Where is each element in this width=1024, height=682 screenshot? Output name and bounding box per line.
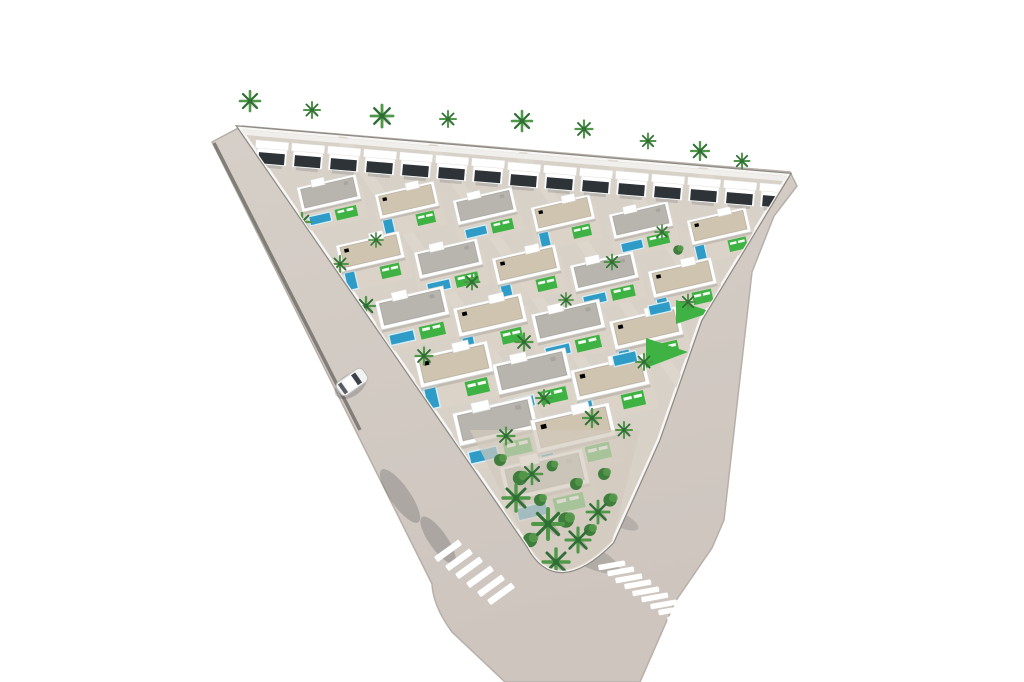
palm-tree: [641, 134, 656, 149]
palm-tree: [512, 111, 532, 131]
palm-tree: [655, 225, 669, 239]
palm-tree: [681, 295, 696, 310]
palm-tree: [605, 255, 620, 270]
zebra-stripe: [667, 612, 695, 622]
palm-tree: [587, 501, 609, 523]
palm-tree: [522, 464, 542, 484]
palm-tree: [583, 409, 601, 427]
aerial-render-stage: Aerial render of a triangular villa deve…: [0, 0, 1024, 682]
palm-tree: [304, 102, 320, 118]
palm-tree: [616, 422, 632, 438]
palm-tree: [416, 348, 433, 365]
palm-tree: [691, 142, 709, 160]
palm-tree: [440, 111, 456, 127]
palm-tree: [576, 121, 593, 138]
palm-tree: [371, 105, 393, 127]
palm-tree: [735, 154, 750, 169]
palm-tree: [636, 354, 652, 370]
palm-tree: [240, 91, 260, 111]
palm-tree: [503, 485, 529, 511]
palm-tree: [559, 293, 573, 307]
palm-tree: [465, 275, 480, 290]
palm-tree: [498, 428, 515, 445]
palm-tree: [566, 528, 590, 552]
aerial-render: Aerial render of a triangular villa deve…: [0, 0, 1024, 682]
palm-tree: [533, 509, 563, 539]
palm-tree: [516, 334, 533, 351]
palm-tree: [536, 390, 552, 406]
palm-tree: [369, 233, 383, 247]
